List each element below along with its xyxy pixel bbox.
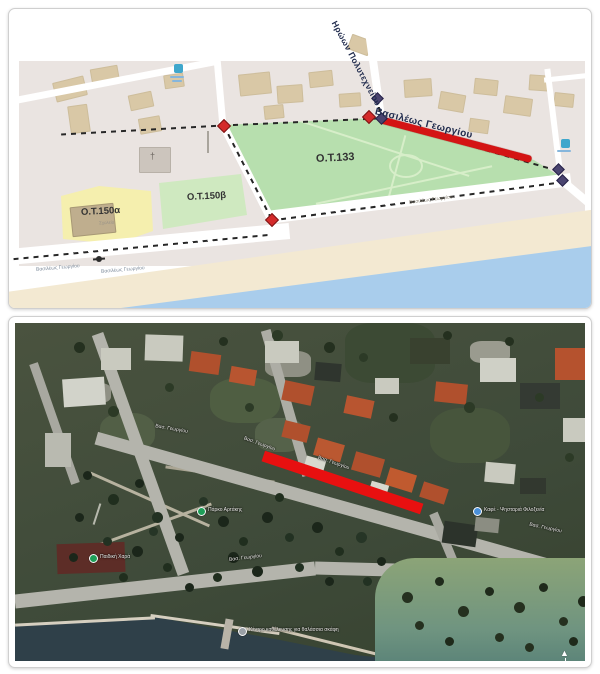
- building: [480, 358, 516, 382]
- poi-icon: [174, 64, 183, 73]
- building: [62, 377, 106, 408]
- vegetation-patch: [430, 408, 510, 463]
- vegetation-patch: [210, 378, 280, 423]
- building: [553, 92, 574, 108]
- building: [410, 338, 450, 364]
- block-label-ot150a: Ο.Τ.150α: [81, 205, 121, 218]
- north-arrow-icon: ▲: [560, 648, 569, 658]
- building: [403, 78, 432, 98]
- poi-icon: [561, 139, 570, 148]
- street-label: Βασ. Γεωργίου: [229, 553, 262, 563]
- poi-label: Κέντρο καθέλκυσης για θαλάσσια σκάφη: [249, 627, 339, 633]
- satellite-image: Βασ. Γεωργίου Βασ. Γεωργίου Βασ. Γεωργίο…: [15, 323, 585, 661]
- block-label-ot133: Ο.Τ.133: [316, 151, 355, 165]
- building: [563, 418, 585, 442]
- building: [484, 462, 516, 485]
- park-path-circle: [389, 154, 423, 178]
- sea: [15, 593, 415, 661]
- poi-caption: [172, 80, 182, 82]
- schematic-map-card: †: [8, 8, 592, 309]
- street-name-smudge: [207, 131, 209, 153]
- building: [520, 383, 560, 409]
- building: [419, 481, 449, 504]
- building: [375, 378, 399, 394]
- building: [520, 478, 546, 494]
- street-label: Βασ. Γεωργίου: [529, 522, 562, 535]
- building: [555, 348, 585, 380]
- building: [263, 104, 284, 120]
- block-label-ot150b: Ο.Τ.150β: [187, 190, 227, 203]
- building: [238, 71, 272, 96]
- block-sublabel-ot150a: Σχολείο: [99, 220, 114, 226]
- poi-label: Παιδική Χαρά: [100, 554, 130, 560]
- church-cross-icon: †: [150, 151, 155, 161]
- poi-caption: [557, 150, 571, 152]
- building: [314, 362, 341, 382]
- building: [101, 348, 131, 370]
- building: [473, 78, 499, 96]
- building: [434, 381, 468, 404]
- building: [385, 467, 417, 492]
- stop-marker: [96, 256, 102, 262]
- building: [503, 95, 533, 117]
- building: [343, 395, 374, 418]
- building: [474, 517, 499, 533]
- figure-page: †: [0, 0, 600, 674]
- building: [145, 334, 184, 361]
- restaurant-poi-icon: [473, 507, 482, 516]
- building: [308, 70, 334, 88]
- building: [339, 92, 362, 108]
- building: [351, 451, 385, 478]
- poi-caption: [170, 76, 184, 78]
- satellite-map-card: Βασ. Γεωργίου Βασ. Γεωργίου Βασ. Γεωργίο…: [8, 316, 592, 668]
- building: [45, 433, 71, 467]
- poi-label: Πάρκο Αρτάκης: [208, 507, 242, 513]
- poi-label: Καφέ - Ψησταριά Φιλοξενία: [484, 507, 544, 513]
- north-arrow-stem: [565, 658, 567, 661]
- tree-cluster: [15, 323, 20, 328]
- building: [265, 341, 299, 363]
- street-name-smudge: [93, 503, 101, 524]
- building: [67, 104, 91, 135]
- field: [375, 558, 585, 661]
- building: [189, 351, 221, 375]
- park-poi-icon: [197, 507, 206, 516]
- boat-ramp-poi-icon: [238, 627, 247, 636]
- building: [276, 84, 303, 104]
- street-label: Βασ. Γεωργίου: [155, 423, 188, 435]
- building: [442, 521, 479, 548]
- playground-poi-icon: [89, 554, 98, 563]
